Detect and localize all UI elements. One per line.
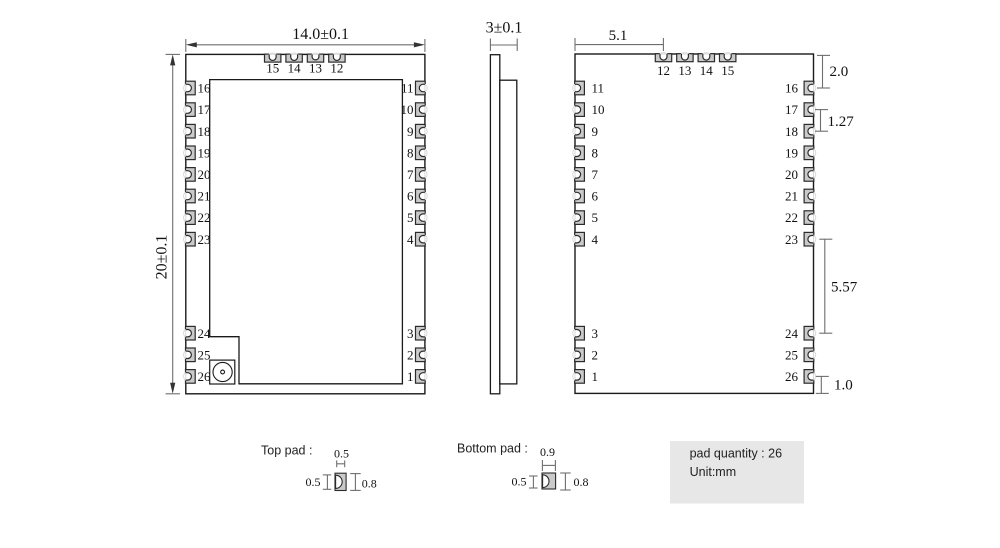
svg-text:14.0±0.1: 14.0±0.1 — [292, 26, 349, 43]
svg-text:25: 25 — [198, 347, 211, 362]
svg-text:18: 18 — [198, 124, 211, 139]
svg-text:16: 16 — [785, 81, 799, 96]
svg-text:24: 24 — [198, 326, 212, 341]
svg-text:23: 23 — [785, 232, 798, 247]
svg-text:0.9: 0.9 — [540, 445, 555, 459]
svg-text:14: 14 — [288, 61, 302, 76]
svg-text:23: 23 — [198, 232, 211, 247]
svg-text:20: 20 — [198, 167, 211, 182]
svg-text:5.1: 5.1 — [609, 28, 628, 44]
svg-text:1: 1 — [407, 369, 414, 384]
svg-text:4: 4 — [592, 232, 599, 247]
svg-text:13: 13 — [678, 63, 691, 78]
svg-text:20: 20 — [785, 167, 798, 182]
svg-text:10: 10 — [592, 102, 605, 117]
svg-text:0.5: 0.5 — [306, 475, 321, 489]
svg-text:9: 9 — [592, 124, 599, 139]
svg-text:8: 8 — [592, 145, 599, 160]
svg-text:22: 22 — [785, 210, 798, 225]
svg-text:5.57: 5.57 — [831, 280, 858, 296]
svg-text:6: 6 — [407, 189, 414, 204]
svg-text:19: 19 — [198, 145, 211, 160]
svg-text:14: 14 — [700, 63, 714, 78]
svg-text:3±0.1: 3±0.1 — [486, 20, 523, 37]
svg-text:5: 5 — [592, 210, 599, 225]
svg-text:19: 19 — [785, 145, 798, 160]
svg-text:5: 5 — [407, 210, 414, 225]
svg-text:20±0.1: 20±0.1 — [154, 235, 171, 280]
svg-text:3: 3 — [592, 326, 599, 341]
svg-text:2: 2 — [407, 347, 414, 362]
svg-text:Bottom pad :: Bottom pad : — [457, 441, 528, 455]
svg-text:12: 12 — [657, 63, 670, 78]
svg-text:21: 21 — [785, 189, 798, 204]
svg-text:Unit:mm: Unit:mm — [690, 465, 737, 479]
svg-text:1: 1 — [592, 369, 599, 384]
svg-text:26: 26 — [785, 369, 799, 384]
svg-text:2: 2 — [592, 347, 599, 362]
svg-text:0.8: 0.8 — [574, 475, 589, 489]
svg-text:15: 15 — [266, 61, 279, 76]
svg-text:pad quantity : 26: pad quantity : 26 — [690, 447, 782, 461]
svg-text:22: 22 — [198, 210, 211, 225]
svg-text:17: 17 — [785, 102, 799, 117]
svg-text:10: 10 — [401, 102, 414, 117]
svg-text:0.8: 0.8 — [362, 477, 377, 491]
svg-text:4: 4 — [407, 232, 414, 247]
svg-text:24: 24 — [785, 326, 799, 341]
svg-text:18: 18 — [785, 124, 798, 139]
svg-text:Top pad :: Top pad : — [261, 444, 312, 458]
svg-text:8: 8 — [407, 145, 414, 160]
svg-text:6: 6 — [592, 189, 599, 204]
svg-text:11: 11 — [592, 81, 605, 96]
svg-text:1.27: 1.27 — [828, 114, 855, 130]
svg-text:0.5: 0.5 — [334, 447, 349, 461]
svg-text:16: 16 — [198, 81, 212, 96]
svg-text:26: 26 — [198, 369, 212, 384]
svg-text:15: 15 — [721, 63, 734, 78]
svg-text:7: 7 — [592, 167, 599, 182]
svg-text:1.0: 1.0 — [834, 378, 853, 394]
svg-text:13: 13 — [309, 61, 322, 76]
svg-text:25: 25 — [785, 347, 798, 362]
svg-text:12: 12 — [330, 61, 343, 76]
svg-text:3: 3 — [407, 326, 414, 341]
svg-text:0.5: 0.5 — [512, 475, 527, 489]
svg-text:17: 17 — [198, 102, 212, 117]
svg-text:11: 11 — [401, 81, 414, 96]
svg-text:2.0: 2.0 — [830, 64, 849, 80]
svg-text:21: 21 — [198, 189, 211, 204]
svg-text:9: 9 — [407, 124, 414, 139]
svg-text:7: 7 — [407, 167, 414, 182]
